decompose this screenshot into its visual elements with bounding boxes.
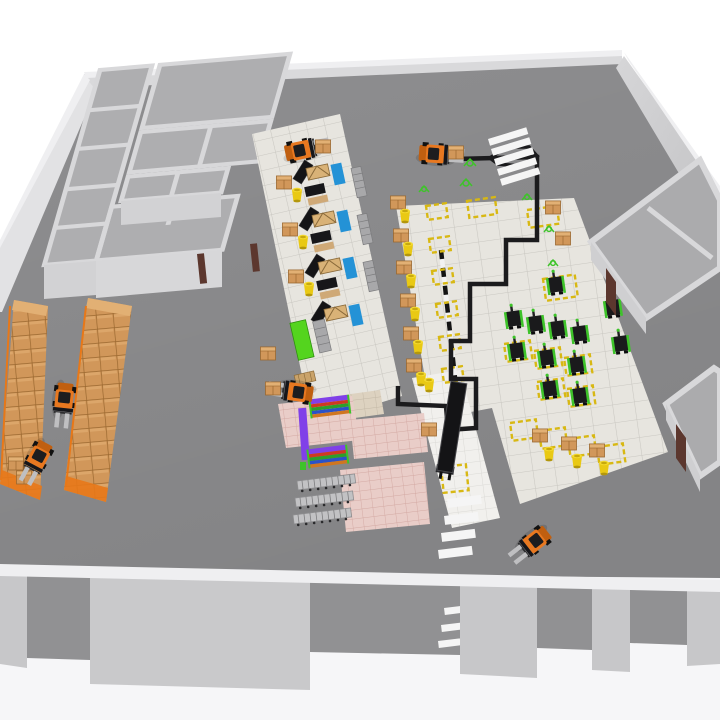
safety-barrel [298,235,308,250]
cardboard-box [562,437,577,450]
safety-barrel [544,447,554,462]
wall-pillar [592,583,630,672]
cardboard-box [9,457,24,470]
safety-barrel [400,209,410,224]
safety-barrel [424,378,434,393]
cardboard-box [391,196,406,209]
safety-barrel [599,461,609,476]
cardboard-box [533,429,548,442]
wall-slab [90,576,310,690]
scene-canvas [0,0,720,720]
cardboard-box [397,261,412,274]
cardboard-box [556,232,571,245]
cardboard-box [316,140,331,153]
wall-pillar [460,581,537,678]
cardboard-box [546,201,561,214]
cardboard-box [404,327,419,340]
green-block [300,462,306,470]
safety-barrel [406,274,416,289]
cardboard-box [449,146,464,159]
wall-opening [630,583,687,645]
warehouse-3d-scene [0,0,720,720]
wall-opening [537,582,592,650]
cardboard-box [590,444,605,457]
cardboard-box [407,359,422,372]
safety-barrel [572,454,582,469]
cardboard-box [401,294,416,307]
safety-barrel [304,282,314,297]
wall-pillar [0,574,27,668]
cardboard-box [266,382,281,395]
wall-opening [310,579,460,655]
cardboard-box [261,347,276,360]
cardboard-box [394,229,409,242]
safety-barrel [403,242,413,257]
wall-opening [27,575,90,660]
office-left-wall-face [44,261,96,299]
cardboard-box [289,270,304,283]
safety-barrel [410,307,420,322]
safety-barrel [292,188,302,203]
cardboard-box [422,423,437,436]
safety-barrel [413,340,423,355]
wall-pillar [687,584,720,666]
cardboard-box [277,176,292,189]
cardboard-box [283,223,298,236]
